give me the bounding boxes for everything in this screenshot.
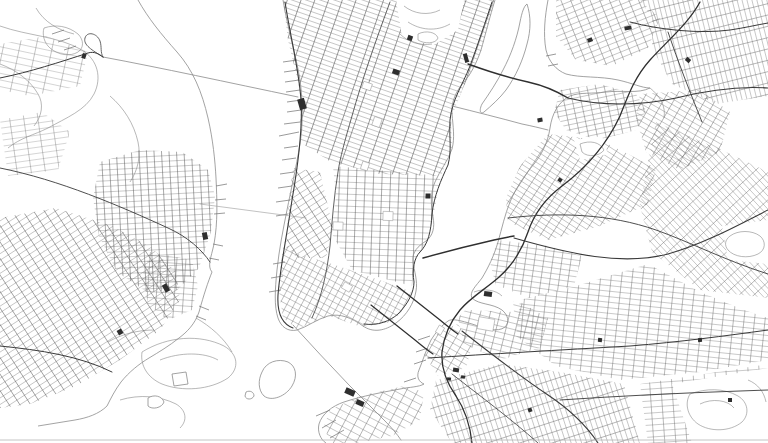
island-bay-islet <box>245 391 254 399</box>
map-background <box>0 0 768 443</box>
map-canvas <box>0 0 768 443</box>
blob-crownheights-block <box>728 398 732 402</box>
blob-atlantic-yards-2 <box>447 377 451 381</box>
blob-greenpoint-block <box>537 118 543 123</box>
blob-bedstuy-block-1 <box>598 338 602 342</box>
blob-bedstuy-block-2 <box>698 338 702 342</box>
park-tompkins-square <box>383 211 393 220</box>
nyc-street-map <box>0 0 768 443</box>
park-fort-greene-park <box>477 317 495 332</box>
blob-atlantic-yards-1 <box>461 375 465 379</box>
blob-con-ed-block <box>425 193 430 198</box>
island-ellis-island <box>172 372 188 386</box>
park-washington-square <box>333 222 343 230</box>
map-canvas-host <box>0 0 768 443</box>
blob-barclays-block <box>453 368 459 373</box>
cover-cemetery-east <box>722 220 768 264</box>
